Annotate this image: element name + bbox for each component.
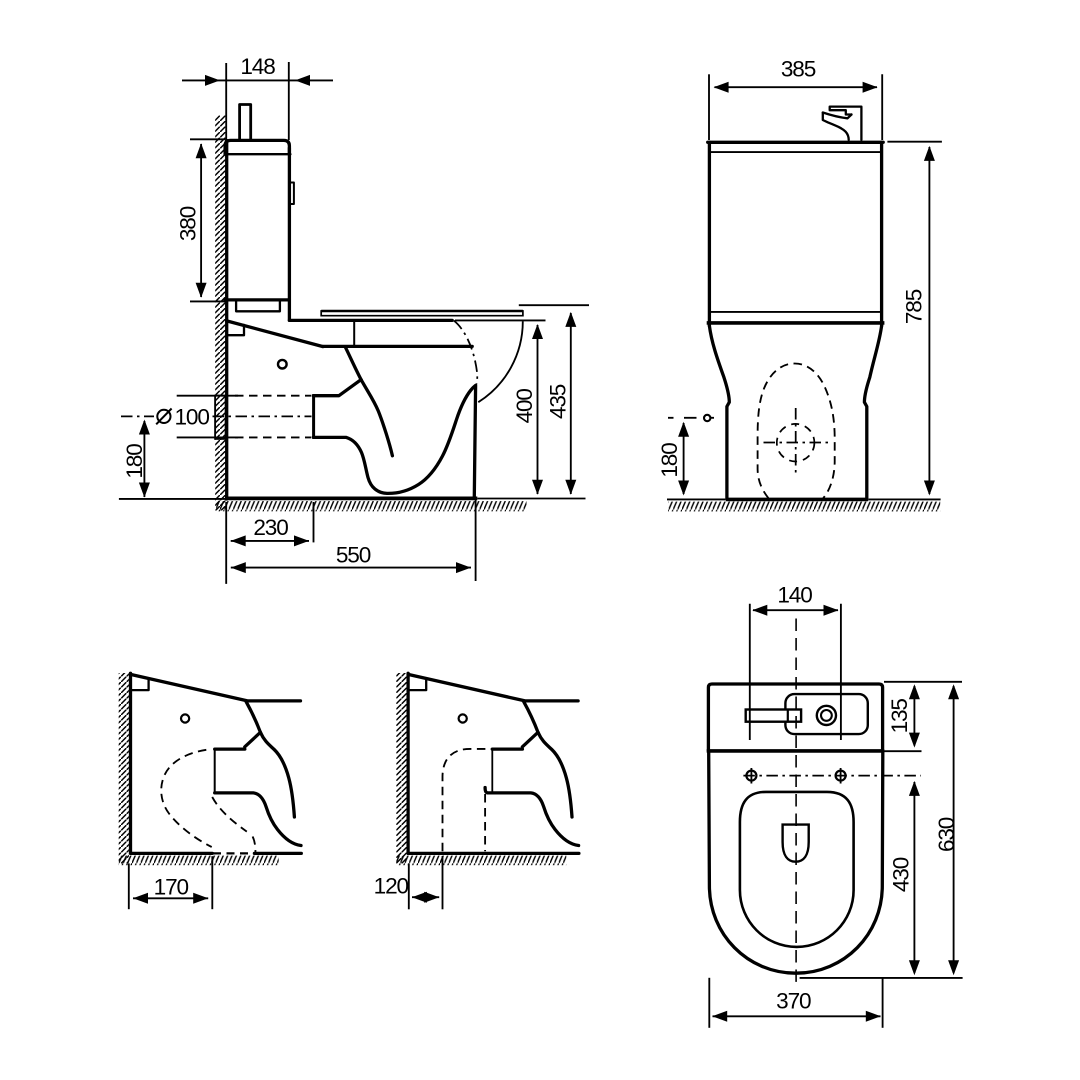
- svg-text:135: 135: [887, 699, 912, 734]
- svg-text:370: 370: [776, 989, 811, 1014]
- svg-text:120: 120: [374, 874, 409, 899]
- svg-text:550: 550: [336, 543, 371, 568]
- svg-text:400: 400: [512, 389, 537, 424]
- svg-text:180: 180: [122, 444, 147, 479]
- svg-text:100: 100: [175, 404, 210, 429]
- svg-text:148: 148: [240, 54, 275, 79]
- svg-text:435: 435: [545, 384, 570, 419]
- svg-text:785: 785: [902, 289, 927, 324]
- svg-text:180: 180: [657, 443, 682, 478]
- svg-text:170: 170: [154, 875, 189, 900]
- svg-text:380: 380: [175, 206, 200, 241]
- svg-text:630: 630: [934, 817, 959, 852]
- svg-text:230: 230: [253, 515, 288, 540]
- svg-text:430: 430: [889, 857, 914, 892]
- svg-text:385: 385: [781, 57, 816, 82]
- svg-text:140: 140: [777, 582, 812, 607]
